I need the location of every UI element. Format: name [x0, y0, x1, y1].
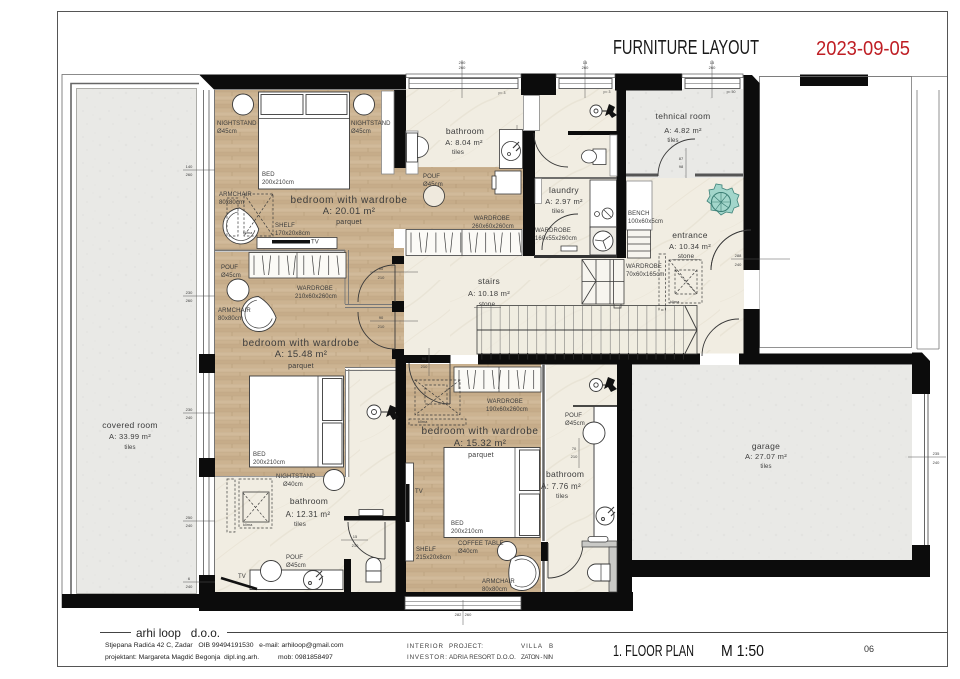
svg-text:BED: BED	[253, 452, 266, 458]
svg-text:BED: BED	[451, 521, 464, 527]
svg-text:240: 240	[933, 460, 940, 465]
svg-text:klima: klima	[243, 522, 253, 527]
svg-text:200x210cm: 200x210cm	[262, 180, 294, 186]
svg-text:250: 250	[186, 515, 193, 520]
svg-text:stone: stone	[678, 253, 695, 260]
svg-text:bathroom: bathroom	[546, 469, 584, 479]
svg-text:80x80cm: 80x80cm	[218, 316, 243, 322]
svg-text:260: 260	[186, 298, 193, 303]
svg-text:240: 240	[735, 262, 742, 267]
svg-text:POUF: POUF	[565, 413, 582, 419]
svg-text:bathroom: bathroom	[446, 126, 484, 136]
svg-text:VILLA: VILLA	[521, 643, 543, 650]
svg-text:2023-09-05: 2023-09-05	[816, 38, 910, 60]
svg-text:70: 70	[572, 446, 577, 451]
svg-text:tiles: tiles	[760, 464, 771, 470]
svg-text:TV: TV	[415, 489, 423, 495]
svg-text:POUF: POUF	[286, 555, 303, 561]
svg-text:ADRIA RESORT D.O.O.: ADRIA RESORT D.O.O.	[449, 654, 516, 661]
svg-text:B: B	[549, 643, 553, 650]
svg-text:klima: klima	[670, 299, 680, 304]
svg-text:210: 210	[571, 454, 578, 459]
svg-text:215x20x8cm: 215x20x8cm	[416, 555, 451, 561]
svg-text:80x80cm: 80x80cm	[219, 200, 244, 206]
svg-text:230: 230	[186, 407, 193, 412]
svg-text:A: 12.31 m²: A: 12.31 m²	[286, 510, 331, 519]
svg-text:TV: TV	[238, 574, 246, 580]
svg-text:240: 240	[186, 584, 193, 589]
svg-text:Ø45cm: Ø45cm	[221, 273, 241, 279]
svg-text:WARDROBE: WARDROBE	[474, 216, 510, 222]
svg-text:tiles: tiles	[667, 138, 678, 144]
svg-text:WARDROBE: WARDROBE	[535, 228, 571, 234]
svg-text:90: 90	[379, 315, 384, 320]
svg-text:A: 27.07 m²: A: 27.07 m²	[745, 452, 787, 461]
svg-text:NIGHTSTAND: NIGHTSTAND	[276, 474, 316, 480]
svg-text:90: 90	[422, 356, 427, 361]
svg-text:260: 260	[709, 65, 716, 70]
svg-text:p= 3: p= 3	[604, 90, 611, 94]
svg-text:tiles: tiles	[124, 445, 135, 451]
svg-text:Stjepana Radića 42 C, Zadar: Stjepana Radića 42 C, Zadar OIB 99494191…	[105, 642, 344, 649]
svg-text:80x80cm: 80x80cm	[482, 587, 507, 593]
svg-text:160x55x260cm: 160x55x260cm	[535, 236, 577, 242]
svg-text:170x20x8cm: 170x20x8cm	[275, 231, 310, 237]
svg-text:WARDROBE: WARDROBE	[297, 286, 333, 292]
svg-text:A: 7.76 m²: A: 7.76 m²	[541, 482, 581, 491]
svg-text:98: 98	[679, 164, 684, 169]
svg-text:covered room: covered room	[102, 420, 158, 430]
svg-text:260: 260	[186, 172, 193, 177]
svg-text:stone: stone	[479, 301, 496, 308]
svg-text:A: 20.01 m²: A: 20.01 m²	[323, 206, 375, 217]
svg-text:tiles: tiles	[294, 521, 307, 528]
svg-text:bathroom: bathroom	[290, 496, 328, 506]
svg-text:1. FLOOR PLAN: 1. FLOOR PLAN	[613, 643, 694, 660]
svg-text:klima: klima	[243, 230, 253, 235]
svg-text:210x60x260cm: 210x60x260cm	[295, 294, 337, 300]
svg-text:WARDROBE: WARDROBE	[626, 264, 662, 270]
svg-text:87: 87	[679, 156, 684, 161]
svg-text:laundry: laundry	[549, 185, 579, 195]
svg-text:Ø45cm: Ø45cm	[286, 563, 306, 569]
svg-text:garage: garage	[752, 441, 780, 451]
svg-text:A: 10.18 m²: A: 10.18 m²	[468, 289, 510, 298]
svg-text:parquet: parquet	[288, 363, 314, 370]
svg-text:NIGHTSTAND: NIGHTSTAND	[351, 121, 391, 127]
svg-text:200x210cm: 200x210cm	[253, 460, 285, 466]
svg-text:235: 235	[933, 451, 940, 456]
svg-text:Ø40cm: Ø40cm	[458, 549, 478, 555]
svg-text:POUF: POUF	[221, 265, 238, 271]
svg-text:bedroom with wardrobe: bedroom with wardrobe	[242, 338, 359, 349]
svg-text:260: 260	[582, 65, 589, 70]
svg-text:INTERIOR: INTERIOR	[407, 643, 444, 650]
svg-text:ARMCHAIR: ARMCHAIR	[219, 192, 252, 198]
svg-text:BED: BED	[262, 172, 275, 178]
svg-text:210: 210	[421, 364, 428, 369]
svg-text:210: 210	[378, 324, 385, 329]
svg-text:arhi loop d.o.o.: arhi loop d.o.o.	[136, 626, 220, 640]
svg-text:entrance: entrance	[672, 230, 707, 240]
svg-text:240: 240	[186, 415, 193, 420]
svg-text:tiles: tiles	[452, 149, 465, 156]
svg-text:PROJECT:: PROJECT:	[449, 643, 483, 650]
svg-text:parquet: parquet	[336, 219, 362, 226]
svg-text:Ø45cm: Ø45cm	[217, 129, 237, 135]
svg-text:p= 50: p= 50	[727, 90, 736, 94]
svg-text:tehnical room: tehnical room	[656, 111, 711, 121]
svg-text:ARMCHAIR: ARMCHAIR	[482, 579, 515, 585]
svg-text:100x60x5cm: 100x60x5cm	[628, 219, 663, 225]
svg-text:klima: klima	[418, 419, 428, 424]
svg-text:200x210cm: 200x210cm	[451, 529, 483, 535]
svg-text:A: 15.32 m²: A: 15.32 m²	[454, 438, 506, 449]
svg-text:POUF: POUF	[423, 174, 440, 180]
svg-text:stairs: stairs	[478, 276, 500, 286]
svg-text:tiles: tiles	[552, 208, 565, 215]
svg-text:260: 260	[465, 612, 472, 617]
svg-text:projektant: Margareta Magdić B: projektant: Margareta Magdić Begonja dip…	[105, 654, 333, 661]
svg-text:A: 10.34 m²: A: 10.34 m²	[669, 242, 711, 251]
svg-text:ZATON - NIN: ZATON - NIN	[521, 654, 553, 661]
svg-text:Ø40cm: Ø40cm	[283, 482, 303, 488]
svg-text:A: 4.82 m²: A: 4.82 m²	[664, 126, 702, 135]
svg-text:06: 06	[864, 644, 874, 654]
svg-text:BENCH: BENCH	[628, 211, 650, 217]
svg-text:A: 33.99 m²: A: 33.99 m²	[109, 432, 151, 441]
svg-text:A: 15.48 m²: A: 15.48 m²	[275, 349, 327, 360]
svg-text:NIGHTSTAND: NIGHTSTAND	[217, 121, 257, 127]
svg-text:ARMCHAIR: ARMCHAIR	[218, 308, 251, 314]
svg-text:Ø45cm: Ø45cm	[565, 421, 585, 427]
svg-text:tiles: tiles	[556, 493, 569, 500]
svg-text:COFFEE TABLE: COFFEE TABLE	[458, 541, 504, 547]
svg-text:140: 140	[186, 164, 193, 169]
svg-text:WARDROBE: WARDROBE	[487, 399, 523, 405]
svg-text:282: 282	[455, 612, 462, 617]
svg-text:260x60x260cm: 260x60x260cm	[472, 224, 514, 230]
svg-text:A: 8.04 m²: A: 8.04 m²	[445, 138, 483, 147]
svg-text:288: 288	[735, 253, 742, 258]
svg-text:p= 3: p= 3	[499, 91, 506, 95]
svg-text:bedroom with wardrobe: bedroom with wardrobe	[290, 195, 407, 206]
svg-text:Ø45cm: Ø45cm	[351, 129, 371, 135]
svg-text:240: 240	[186, 523, 193, 528]
svg-text:Ø45cm: Ø45cm	[423, 182, 443, 188]
svg-text:230: 230	[186, 290, 193, 295]
svg-text:INVESTOR:: INVESTOR:	[407, 654, 447, 661]
svg-text:parquet: parquet	[468, 452, 494, 459]
svg-text:FURNITURE LAYOUT: FURNITURE LAYOUT	[613, 37, 759, 59]
svg-text:SHELF: SHELF	[275, 223, 295, 229]
svg-text:210: 210	[378, 275, 385, 280]
svg-text:15: 15	[353, 534, 358, 539]
svg-text:A: 2.97 m²: A: 2.97 m²	[545, 197, 583, 206]
svg-text:SHELF: SHELF	[416, 547, 436, 553]
svg-text:TV: TV	[311, 240, 319, 246]
svg-text:M 1:50: M 1:50	[721, 643, 764, 660]
svg-text:bedroom with wardrobe: bedroom with wardrobe	[421, 426, 538, 437]
svg-text:260: 260	[459, 65, 466, 70]
svg-text:190x60x260cm: 190x60x260cm	[486, 407, 528, 413]
